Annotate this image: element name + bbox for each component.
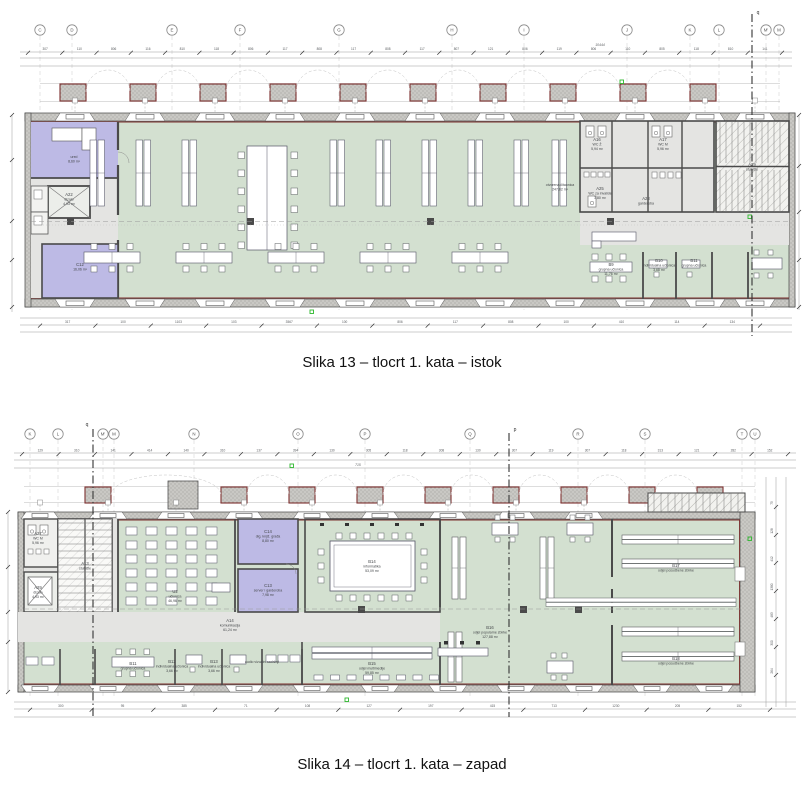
furniture-chair [318,549,324,555]
dim-text: 307 [42,47,48,51]
furniture-chair [768,250,773,255]
furniture-table [126,597,137,605]
window [304,687,320,691]
room-label: 3,66 m² [208,669,221,673]
furniture-chair [311,266,317,272]
furniture-chair [477,266,483,272]
grid-letter: M [112,432,116,437]
grid-letter: J [626,28,628,33]
arcade-arc [436,70,480,92]
room-label: WC za invalide [588,192,611,196]
window [440,687,456,691]
dim-tick [647,324,651,328]
furniture-table [126,583,137,591]
dim-tick [711,51,715,55]
furniture-chair [318,563,324,569]
fixture [42,530,45,533]
furniture-shelf [546,598,736,602]
dim-tick [204,324,208,328]
dim-text: 3567 [286,320,293,324]
furniture-chair [551,653,556,658]
section-label: q [86,422,89,428]
dim-text: 1380 [770,583,774,590]
arcade-arc [111,475,221,495]
fixture [476,641,480,645]
fixture [28,549,33,554]
figure-floor-plan-east: CDEFGHIJKLM'M 30711080611681011880611780… [0,0,804,373]
window [696,115,714,120]
figure-caption-east: Slika 13 – tlocrt 1. kata – istok [0,353,804,373]
furniture-chair [238,188,245,195]
dim-tick [481,324,485,328]
furniture-table [146,555,157,563]
grid-letter: E [171,28,174,33]
dim-text: 317 [65,320,71,324]
furniture-chair [291,170,298,177]
window-tag [310,500,315,505]
furniture-chair [687,272,692,277]
dim-tick [93,452,97,456]
dim-tick [536,324,540,328]
room-label: garderoba [638,202,654,206]
furniture-chair [620,276,626,282]
dim-tick [275,708,279,712]
dim-tick [403,51,407,55]
furniture-table [278,655,288,662]
dim-text: 117 [282,47,287,51]
window [32,687,48,691]
furniture-chair [238,206,245,213]
furniture-chair [109,266,115,272]
dim-tick [421,452,425,456]
furniture-chair [367,244,373,250]
furniture-chair [392,533,398,539]
grid-letter: K [689,28,692,33]
window [706,687,722,691]
furniture-chair [291,188,298,195]
dim-text: 100 [120,320,126,324]
grid-letter: U [753,432,756,437]
room-label: B9 [608,262,614,267]
dim-text: 141 [111,449,117,453]
dim-tick [460,708,464,712]
dim-tick [643,51,647,55]
section-label: q [757,10,760,16]
furniture-chair [183,244,189,250]
arcade-arc [86,70,130,92]
window [66,115,84,120]
fixture [654,131,658,135]
furniture-chair [127,244,133,250]
room-label: C13 [264,583,272,588]
furniture-chair [219,266,225,272]
fixture [652,172,657,178]
wall [25,113,31,307]
window [136,115,154,120]
grid-letter: O [296,432,300,437]
dim-tick [398,708,402,712]
furniture-table [186,569,197,577]
furniture-table [126,527,137,535]
furniture-chair [385,244,391,250]
furniture-chair [403,244,409,250]
room-label: WC M [33,537,43,541]
grid-letter: M [777,28,781,33]
room-label: A16 [593,137,601,142]
dim-text: 806 [248,47,254,51]
dim-text: 310 [220,449,226,453]
room-label: B12 [168,659,176,664]
furniture-chair [385,266,391,272]
dim-text: 264 [770,668,774,674]
room-label: odjel posudbene zbirke [658,662,694,666]
dim-tick [239,452,243,456]
window [372,514,388,518]
dim-tick [494,452,498,456]
arcade-arc [366,70,410,92]
dim-text: 95 [121,704,125,708]
dim-tick [336,708,340,712]
green-marker [345,698,349,702]
room-label: dig. knjiž. građa [256,535,281,539]
dim-tick [213,708,217,712]
furniture-table [166,527,177,535]
dim-tick [315,324,319,328]
dim-tick [266,51,270,55]
dim-tick [677,51,681,55]
room-label: 5,96 m² [657,147,670,151]
window-tag [514,500,519,505]
furniture-chair [403,266,409,272]
room-label: individualna učionica [643,264,675,268]
arcade-pillar-layer [40,70,780,102]
window [440,514,456,518]
dim-text: 394 [293,449,299,453]
dim-text: 410 [619,320,625,324]
fixture [735,567,745,581]
dim-text: 197 [428,704,434,708]
furniture-table [206,541,217,549]
window-tag [143,98,148,103]
dim-text: 108 [305,704,311,708]
room-label: B16 [486,625,494,630]
arcade-arc [519,475,561,495]
furniture-chair [190,667,195,672]
room-label: 5,94 m² [591,147,604,151]
furniture-chair [293,266,299,272]
furniture-chair [510,515,515,520]
fixture [584,172,589,177]
furniture-chair [620,254,626,260]
room-label: A17 [659,137,667,142]
grid-letter: T [741,432,744,437]
furniture-chair [380,675,389,680]
dim-tick [312,452,316,456]
room-label: C14 [264,529,272,534]
furniture-chair [551,675,556,680]
dim-tick [202,452,206,456]
dim-tick [706,708,710,712]
furniture-table [186,597,197,605]
dim-tick [640,452,644,456]
furniture-chair [238,170,245,177]
dim-text: 806 [111,47,117,51]
dim-tick [275,452,279,456]
fixture [598,172,603,177]
room-label: 3,68 m² [653,268,666,272]
furniture-chair [367,266,373,272]
window-tag [283,98,288,103]
room-label: informatika [363,565,380,569]
furniture-table [186,655,202,664]
furniture-chair [413,675,422,680]
dim-tick [163,51,167,55]
room-label: 127,88 m² [482,635,499,639]
window [66,301,84,306]
furniture-chair [183,266,189,272]
dim-text: 806 [397,320,403,324]
room-label: stubište [79,567,91,571]
dim-text: 205 [675,704,681,708]
arcade-arc [383,475,425,495]
window-tag [633,98,638,103]
dim-text: 414 [147,449,153,453]
furniture-chair [350,533,356,539]
room-label: 59,85 m² [365,671,380,675]
window-tag [73,98,78,103]
furniture-chair [397,675,406,680]
furniture-table [126,555,137,563]
furniture-chair [406,595,412,601]
dim-tick [151,708,155,712]
dim-tick [28,708,32,712]
arcade-arc [506,70,550,92]
room-label: A27 [34,531,42,536]
dim-text: 127 [367,704,373,708]
dim-text: 713 [552,704,558,708]
room-label: A13 [81,561,89,566]
furniture-table [146,527,157,535]
grid-letter: R [576,432,579,437]
window [136,301,154,306]
plan-west-svg: KLM'MNOPQRSTU 12931014141414031013739413… [0,417,804,747]
dim-text: 110 [625,47,630,51]
fixture [395,523,399,526]
window [346,301,364,306]
furniture-chair [378,595,384,601]
grid-letter: Q [468,432,472,437]
dim-text: 140 [183,449,189,453]
furniture-chair [459,266,465,272]
grid-letter: I [523,28,524,33]
dim-text: 118 [402,449,407,453]
furniture-table [26,657,38,665]
grid-letter: N [192,432,195,437]
furniture-chair [421,549,427,555]
room-label: dizalo [64,198,73,202]
room-label: B10 [655,258,663,263]
furniture-table [592,241,601,248]
dim-tick [713,452,717,456]
dim-text: 119 [548,449,553,453]
furniture-chair [116,671,122,677]
dim-tick [26,51,30,55]
furniture-table [166,541,177,549]
grid-letter: H [450,28,453,33]
dim-text: 130 [475,449,481,453]
fixture [345,523,349,526]
furniture-chair [364,595,370,601]
furniture-table [186,541,197,549]
figure-floor-plan-west: KLM'MNOPQRSTU 12931014141414031013739413… [0,417,804,775]
furniture-chair [570,515,575,520]
room-label: odjel posudbene zbirke [658,569,694,573]
furniture-shelf [546,603,736,607]
green-marker [620,80,624,84]
window [696,301,714,306]
furniture-chair [654,272,659,277]
furniture-chair [201,266,207,272]
fixture [444,641,448,645]
furniture-table [166,569,177,577]
dim-text: 415 [490,704,496,708]
dim-text: 310 [74,449,80,453]
room-label: U2 [172,589,178,594]
furniture-table [186,527,197,535]
dim-text: 806 [522,47,528,51]
dim-tick [609,51,613,55]
dim-text: 116 [145,47,150,51]
window [32,514,48,518]
furniture-table [567,523,593,535]
furniture-chair [421,563,427,569]
dim-tick [458,452,462,456]
dim-tick [786,452,790,456]
dim-tick [95,51,99,55]
window [626,115,644,120]
fixture [34,190,42,199]
arcade-arc [576,70,620,92]
dim-text: 117 [351,47,356,51]
furniture-table [492,523,518,535]
furniture-chair [585,515,590,520]
grid-letter: K [29,432,32,437]
fixture [588,131,592,135]
dim-text: 117 [420,47,425,51]
dim-tick [780,51,784,55]
dim-tick [604,452,608,456]
dim-text: 121 [694,449,700,453]
room-label: 3,66 m² [166,669,179,673]
room-label: B18 [672,656,680,661]
dim-tick [348,452,352,456]
furniture-table [146,583,157,591]
furniture-chair [291,206,298,213]
room-label: WC Ž [593,142,603,147]
dim-text: 128 [770,528,774,534]
room-label: 53,09 m² [365,569,380,573]
window [644,687,660,691]
furniture-chair [459,244,465,250]
dim-text: 808 [508,320,514,324]
room-label: učionica [169,595,182,599]
furniture-chair [495,266,501,272]
grid-letter: S [644,432,647,437]
window-tag [582,500,587,505]
dim-tick [334,51,338,55]
arcade-arc [156,70,200,92]
furniture-chair [606,276,612,282]
grid-letter: M' [764,28,769,33]
window-tag [703,98,708,103]
grid-letter: F [239,28,242,33]
fixture [34,216,42,225]
grid-letter: C [38,28,41,33]
dim-tick [56,452,60,456]
furniture-chair [314,675,323,680]
dim-text: 412 [770,556,774,562]
dim-text: 137 [256,449,262,453]
furniture-chair [495,537,500,542]
room-label: B13 [210,659,218,664]
furniture-table [186,555,197,563]
furniture-chair [592,254,598,260]
dim-text: 141 [762,47,768,51]
furniture-chair [109,244,115,250]
furniture-chair [406,533,412,539]
furniture-chair [291,224,298,231]
room-label: 3,80 m² [594,196,607,200]
dim-tick [746,51,750,55]
room-label: odjel popularne zbirke [473,631,507,635]
furniture-chair [477,244,483,250]
wall [789,113,795,307]
dim-text: 300 [58,704,64,708]
fixture [320,523,324,526]
furniture-table [52,128,82,141]
furniture-chair [331,675,340,680]
arcade-arc [247,475,289,495]
room-label: 8,60 m² [68,160,81,164]
furniture-chair [219,244,225,250]
window-tag [106,500,111,505]
dim-text: 808 [317,47,323,51]
furniture-chair [238,152,245,159]
dim-tick [197,51,201,55]
green-marker [310,310,314,314]
window [236,514,252,518]
dim-text: 118 [621,449,626,453]
window [304,514,320,518]
dim-text: 1230 [612,704,619,708]
window [556,115,574,120]
room-label: individualna učionica [156,665,188,669]
furniture-chair [238,242,245,249]
room-label: 4,93 m² [63,202,76,206]
furniture-chair [754,273,759,278]
furniture-table [290,655,300,662]
dim-tick [149,324,153,328]
dim-tick [531,452,535,456]
window [168,514,184,518]
dim-text: 805 [659,47,665,51]
furniture-chair [495,515,500,520]
furniture-table [547,661,573,673]
furniture-chair [421,577,427,583]
dim-text: 100 [563,320,569,324]
room-label: audio vizualni sadržaji [245,660,279,664]
furniture-chair [291,152,298,159]
